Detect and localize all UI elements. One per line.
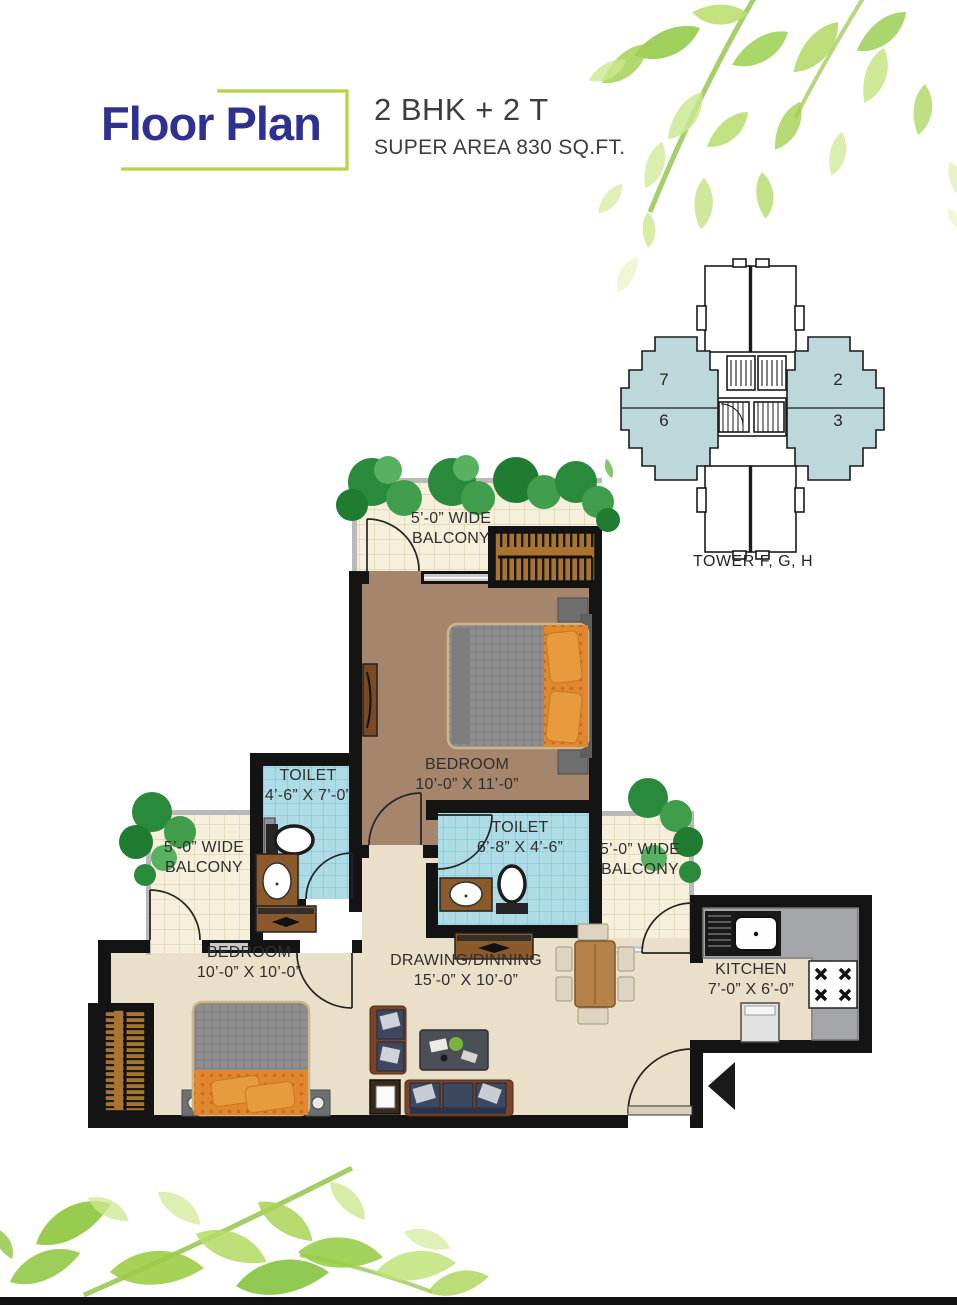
unit-number-2: 2 <box>833 370 842 390</box>
label-bedroom-top: BEDROOM 10’-0” X 11’-0” <box>415 755 518 795</box>
leaves-bottom-left <box>0 1168 490 1297</box>
balcony-left-line2: BALCONY <box>164 858 244 878</box>
coffee-table <box>420 1030 488 1070</box>
tower-bottom-block <box>697 466 804 559</box>
wardrobe-bedroom-bottom <box>105 1010 145 1111</box>
unit-type-label: 2 BHK + 2 T <box>374 92 549 128</box>
bedroom-bottom-name: BEDROOM <box>197 943 301 963</box>
entrance-door-leaf <box>628 1106 692 1115</box>
bedroom-bottom-dims: 10’-0” X 10’-0” <box>197 963 301 983</box>
balcony-left-line1: 5’-0” WIDE <box>164 838 244 858</box>
tower-wing-right <box>787 337 884 480</box>
tower-top-block <box>697 259 804 352</box>
balcony-right-line2: BALCONY <box>600 860 680 880</box>
kitchen-fridge <box>741 1003 779 1042</box>
floor-plan-graphic <box>0 0 957 1305</box>
label-balcony-left: 5’-0” WIDE BALCONY <box>164 838 244 878</box>
tower-key-plan <box>621 259 884 559</box>
bed-top <box>448 598 592 774</box>
kitchen-hob <box>809 961 857 1008</box>
entrance-arrow-icon <box>708 1062 735 1110</box>
balcony-top-line1: 5’-0” WIDE <box>411 509 491 529</box>
kitchen-name: KITCHEN <box>708 960 794 980</box>
label-kitchen: KITCHEN 7’-0” X 6’-0” <box>708 960 794 1000</box>
page-title: Floor Plan <box>101 96 321 151</box>
unit-number-6: 6 <box>659 411 668 431</box>
tower-label: TOWER F, G, H <box>693 553 813 571</box>
floor-plan-page: Floor Plan 2 BHK + 2 T SUPER AREA 830 SQ… <box>0 0 957 1305</box>
toilet-2-name: TOILET <box>477 818 563 838</box>
super-area-label: SUPER AREA 830 SQ.FT. <box>374 136 625 160</box>
tower-wing-left <box>621 337 718 480</box>
bedroom-top-dims: 10’-0” X 11’-0” <box>415 775 518 795</box>
balcony-top-line2: BALCONY <box>411 529 491 549</box>
label-balcony-right: 5’-0” WIDE BALCONY <box>600 840 680 880</box>
drawing-dining-dims: 15’-0” X 10’-0” <box>390 971 542 991</box>
drawing-dining-name: DRAWING/DINNING <box>390 951 542 971</box>
leaves-top-right <box>585 0 957 249</box>
toilet-1-name: TOILET <box>265 766 351 786</box>
dresser-bedroom-bottom <box>256 906 316 932</box>
tower-core-lifts <box>727 356 786 390</box>
toilet-2-dims: 6’-8” X 4’-6” <box>477 838 563 858</box>
tower-corridor-stairs <box>716 398 786 436</box>
label-toilet-1: TOILET 4’-6” X 7’-0” <box>265 766 351 806</box>
label-balcony-top: 5’-0” WIDE BALCONY <box>411 509 491 549</box>
bed-bottom <box>182 1002 330 1116</box>
label-drawing-dining: DRAWING/DINNING 15’-0” X 10’-0” <box>390 951 542 991</box>
sofa-two-seat <box>370 1006 406 1074</box>
toilet-1-dims: 4’-6” X 7’-0” <box>265 786 351 806</box>
bedroom-top-name: BEDROOM <box>415 755 518 775</box>
kitchen-dims: 7’-0” X 6’-0” <box>708 980 794 1000</box>
balcony-right-line1: 5’-0” WIDE <box>600 840 680 860</box>
tv-unit <box>370 1080 400 1114</box>
page-bottom-rule <box>0 1297 957 1305</box>
wardrobe-bedroom-top <box>495 533 595 581</box>
kitchen-sink <box>705 911 781 956</box>
unit-number-7: 7 <box>659 370 668 390</box>
sofa-three-seat <box>405 1080 513 1116</box>
label-bedroom-bottom: BEDROOM 10’-0” X 10’-0” <box>197 943 301 983</box>
mirror-bedroom-top <box>363 664 377 736</box>
label-toilet-2: TOILET 6’-8” X 4’-6” <box>477 818 563 858</box>
unit-number-3: 3 <box>833 411 842 431</box>
